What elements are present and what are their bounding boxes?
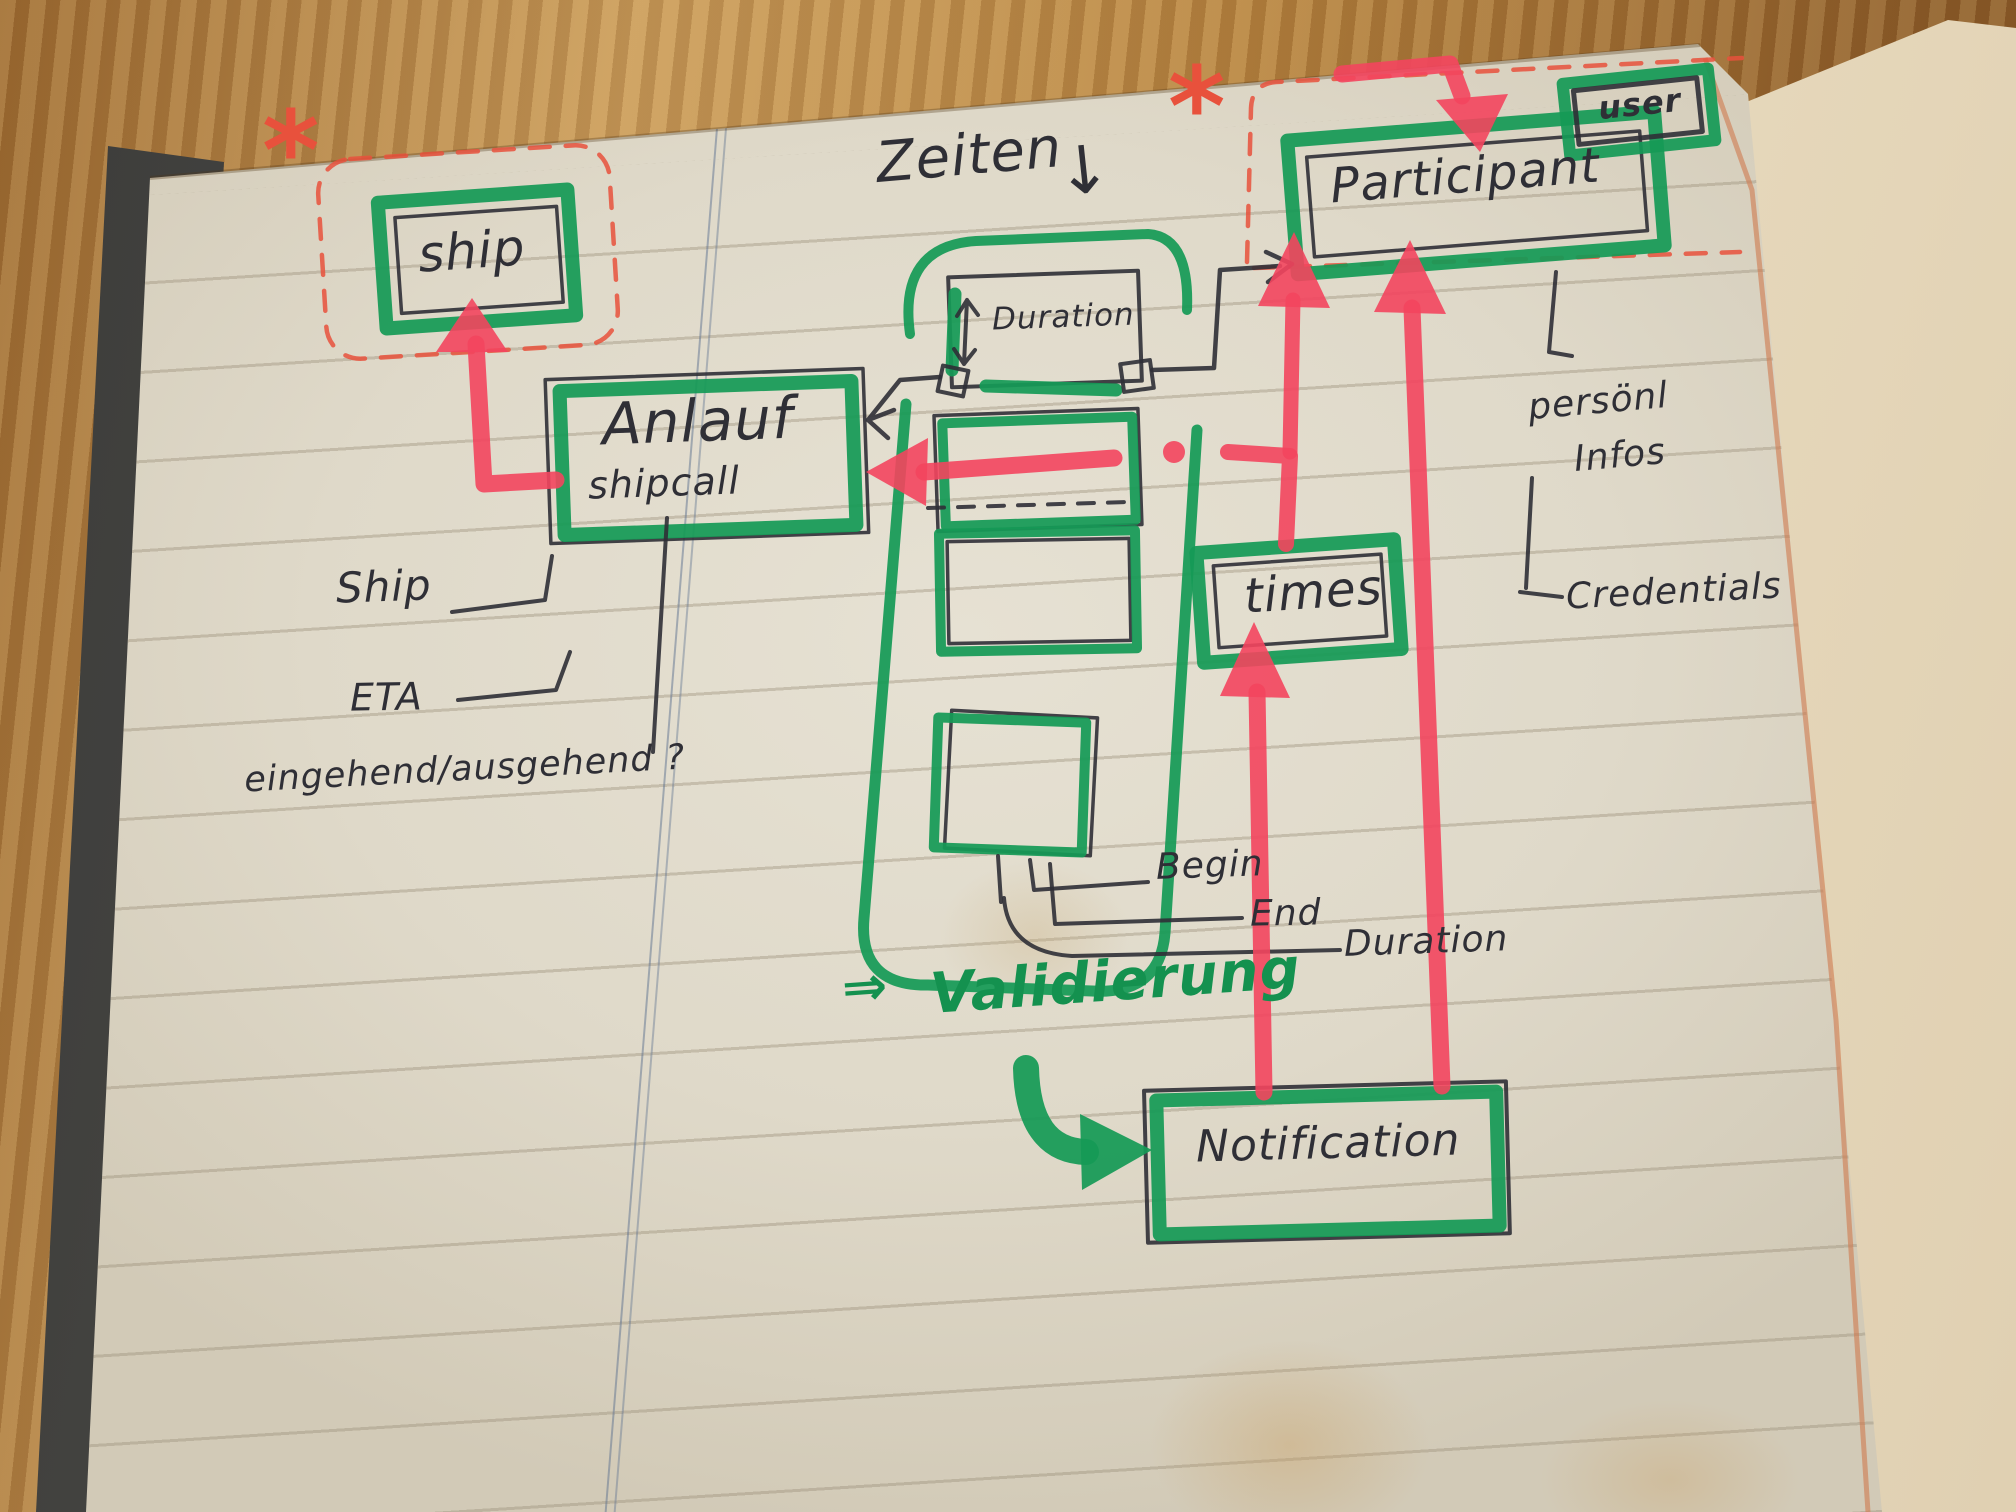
zeiten-item-box-2 bbox=[939, 530, 1137, 651]
duration-box-label: Duration bbox=[992, 300, 1136, 336]
zeiten-item-box-3 bbox=[934, 710, 1098, 855]
zeiten-label: Zeiten bbox=[874, 120, 1064, 192]
connector-diamond-icon bbox=[1120, 360, 1154, 392]
validation-to-notification-arrow bbox=[1026, 1068, 1152, 1190]
personal-info-label-line2: Infos bbox=[1573, 434, 1668, 478]
asterisk-icon: * bbox=[1168, 52, 1227, 162]
end-label: End bbox=[1250, 895, 1322, 932]
times-box-label: times bbox=[1242, 563, 1383, 621]
notification-box-label: Notification bbox=[1195, 1119, 1461, 1170]
validierung-arrow-icon: ⇒ bbox=[840, 958, 890, 1015]
diagram-strokes bbox=[0, 0, 2016, 1512]
eta-line bbox=[458, 652, 570, 700]
page-right-edge bbox=[1705, 58, 1868, 1512]
dashed-divider bbox=[928, 502, 1128, 508]
duration-to-participant-connector bbox=[1152, 252, 1292, 370]
zeiten-down-arrow-icon: ↓ bbox=[1053, 135, 1116, 207]
user-box-label: user bbox=[1597, 84, 1683, 125]
begin-label: Begin bbox=[1155, 846, 1264, 886]
notebook-photo: * * ship Anlauf shipcall Participant use… bbox=[0, 0, 2016, 1512]
ship-attr-line bbox=[452, 556, 552, 612]
credentials-line bbox=[1520, 478, 1562, 597]
red-dot bbox=[1163, 441, 1185, 463]
duration-attr-label: Duration bbox=[1343, 921, 1509, 963]
anlauf-box-sublabel: shipcall bbox=[587, 461, 740, 504]
inbound-line bbox=[653, 518, 667, 752]
asterisk-icon: * bbox=[262, 96, 321, 206]
personal-info-line bbox=[1549, 272, 1572, 356]
ship-box-label: ship bbox=[416, 222, 527, 279]
anlauf-box-label: Anlauf bbox=[601, 389, 794, 454]
eta-label: ETA bbox=[350, 677, 423, 716]
ship-attr-label: Ship bbox=[335, 564, 432, 609]
